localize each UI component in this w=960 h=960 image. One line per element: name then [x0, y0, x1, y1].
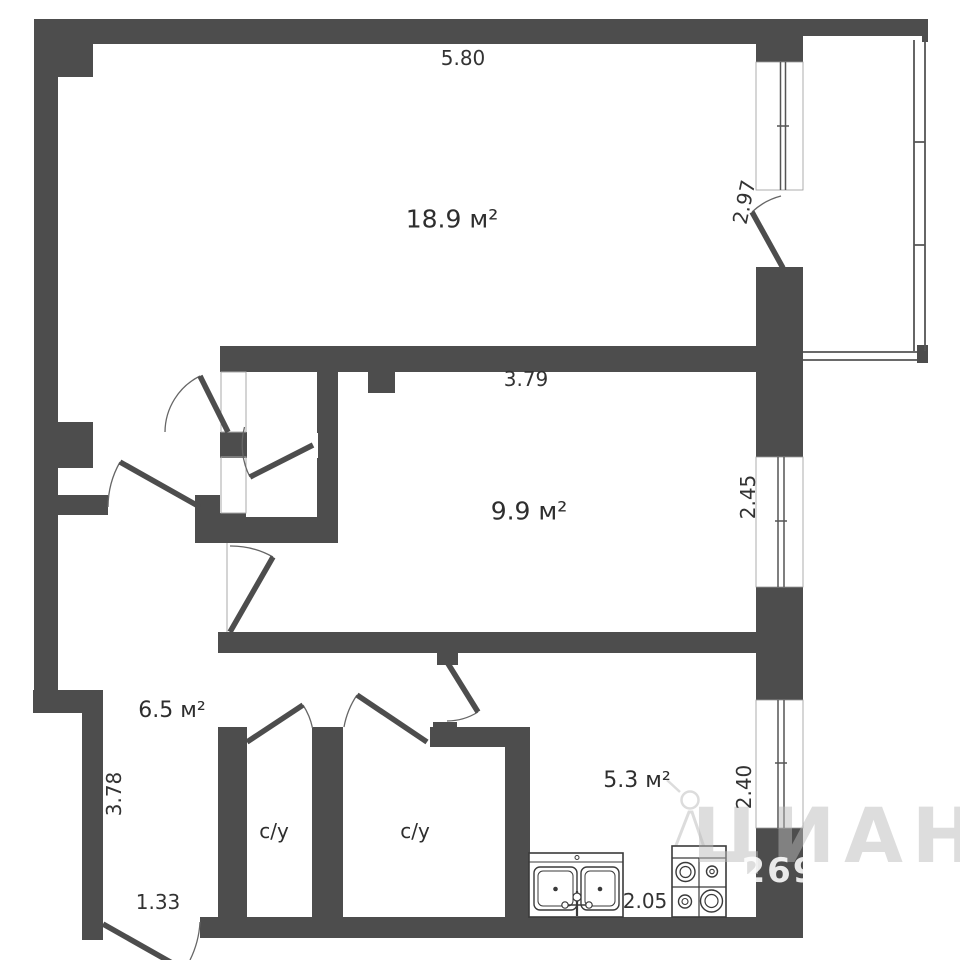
hall-door-leaf	[120, 462, 200, 507]
dimension-kitchen-window-height: 2.40	[734, 765, 754, 810]
wall-living-bedroom	[220, 346, 760, 372]
dimension-entry-width: 1.33	[136, 892, 181, 912]
wall-bedroom-bottom	[218, 632, 760, 653]
balcony-glazing-bottom	[803, 352, 917, 360]
wall-right-upper	[756, 267, 803, 457]
bedroom-door-arc	[230, 546, 273, 557]
closet-door-leaf	[250, 445, 313, 477]
wall-hall-stub	[55, 495, 108, 515]
watermark-number-text: 269	[742, 854, 819, 888]
wall-top-balcony	[790, 19, 928, 36]
watermark-brand-text: ЦИАН	[692, 798, 960, 874]
wall-balcony-corner-tr	[922, 19, 928, 42]
balcony-glazing	[803, 40, 925, 360]
kitchen-door-arc	[447, 712, 478, 721]
wall-pier-left	[55, 422, 93, 468]
closet-hinge-notch	[313, 433, 318, 458]
wall-left-lower	[82, 713, 103, 940]
wall-wc-divider	[312, 727, 343, 917]
living-door-arc	[165, 376, 200, 432]
hall-door-arc	[108, 462, 120, 507]
living-room-area-label: 18.9 м²	[406, 207, 499, 232]
wall-top-main	[34, 19, 790, 44]
bedroom-window-recess	[756, 457, 803, 587]
hallway-area-label: 6.5 м²	[138, 700, 205, 722]
opening-outlines	[221, 372, 246, 632]
bathroom1-door-leaf	[247, 705, 303, 742]
bathroom2-door-leaf	[357, 695, 427, 742]
vestibule-opening-lower	[221, 457, 246, 513]
kitchen-area-label: 5.3 м²	[603, 770, 670, 792]
wall-corner-block-topleft	[34, 19, 93, 77]
bedroom-door-leaf	[230, 557, 273, 632]
bedroom-area-label: 9.9 м²	[491, 499, 568, 524]
kitchen-door-leaf	[447, 662, 478, 712]
bathroom2-label: с/у	[400, 821, 430, 841]
dimension-bedroom-window-height: 2.45	[738, 475, 758, 520]
wall-vestibule-right	[317, 365, 338, 543]
dimension-living-top-width: 5.80	[441, 48, 486, 68]
wall-stub-t	[368, 372, 395, 393]
wall-left-jog	[33, 690, 103, 713]
dimension-bedroom-top-width: 3.79	[504, 369, 549, 389]
wall-bottom	[200, 917, 803, 938]
wall-wc1-left	[218, 727, 247, 917]
dimension-kitchen-bottom-width: 2.05	[623, 891, 668, 911]
wall-balcony-divider-top	[756, 36, 803, 62]
wall-wc2-top-right	[430, 727, 530, 747]
wall-balcony-corner-br	[917, 345, 928, 363]
bathroom1-door-arc	[303, 705, 313, 728]
floorplan-canvas: ЦИАН 269 18.9 м² 9.9 м² 6.5 м² 5.3 м² с/…	[0, 0, 960, 960]
bathroom2-door-arc	[344, 695, 357, 727]
wall-right-mid	[756, 587, 803, 700]
balcony-door-leaf	[752, 212, 783, 268]
entry-door-leaf	[103, 924, 172, 960]
dimension-hallway-left-height: 3.78	[104, 772, 124, 817]
bathroom1-label: с/у	[259, 821, 289, 841]
living-door-leaf	[200, 376, 228, 432]
balcony-glazing-right	[914, 40, 925, 351]
wall-left-upper	[34, 19, 58, 695]
wall-kitchen-left	[505, 747, 530, 917]
entry-door-arc	[190, 922, 200, 960]
sink-icon	[529, 853, 623, 917]
